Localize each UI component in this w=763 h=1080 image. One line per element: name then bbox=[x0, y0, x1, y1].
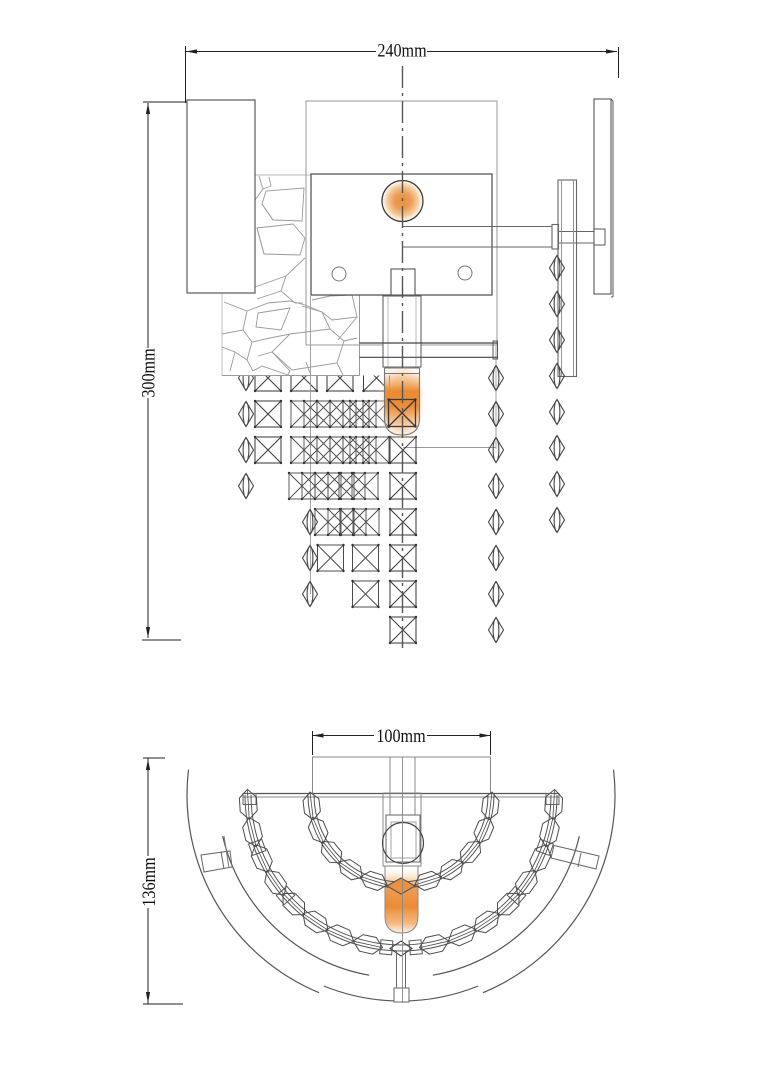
svg-text:136mm: 136mm bbox=[138, 857, 160, 907]
svg-text:300mm: 300mm bbox=[137, 348, 159, 398]
svg-text:240mm: 240mm bbox=[377, 39, 427, 61]
svg-text:100mm: 100mm bbox=[376, 725, 426, 747]
